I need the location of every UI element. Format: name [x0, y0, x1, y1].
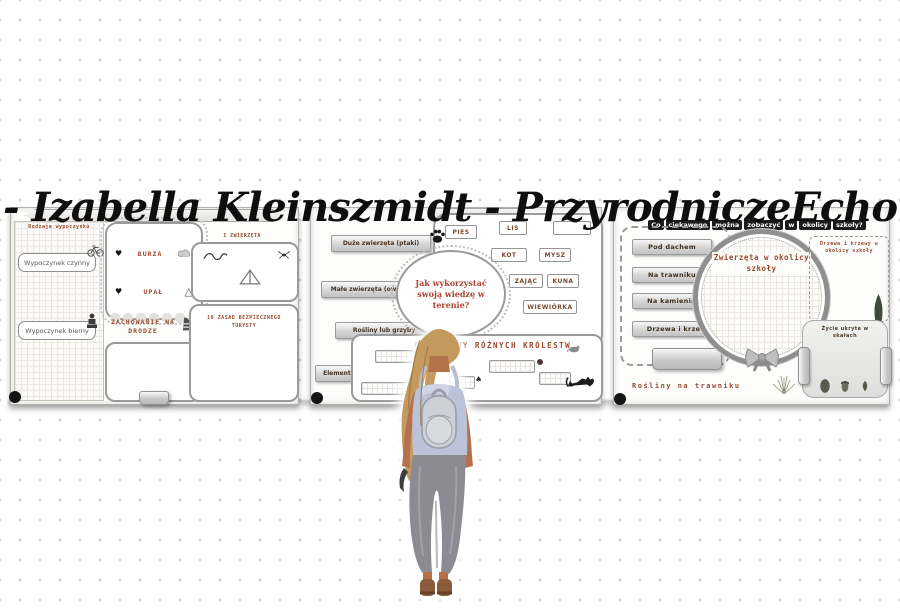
corner-dot — [9, 391, 21, 403]
acorn-icon — [840, 377, 850, 393]
question-text: Jak wykorzystać swoją wiedzę w terenie? — [409, 278, 493, 311]
heart-icon: ♥ — [115, 288, 122, 296]
active-rest-label[interactable]: Wypoczynek czynny — [18, 253, 96, 272]
hiker-woman-photo — [376, 326, 494, 606]
animal-box-mysz[interactable]: MYSZ — [539, 248, 571, 262]
tag-large-animals[interactable]: Duże zwierzęta (ptaki) — [331, 235, 431, 252]
answer-strip[interactable] — [489, 360, 535, 373]
trees-heading: Drzewa i krzewy w okolicy szkoły — [813, 241, 885, 255]
button-pod-dachem[interactable]: Pod dachem — [632, 239, 712, 255]
corner-dot — [614, 393, 626, 405]
animals-caption: I ZWIERZĘTA — [189, 233, 295, 240]
grass-icon — [769, 374, 799, 394]
animal-box-wiewiorka[interactable]: WIEWIÓRKA — [523, 300, 577, 314]
tourist-rules-box: 10 ZASAD BEZPIECZNEGO TURYSTY — [189, 304, 299, 402]
lawn-plants-caption: Rośliny na trawniku — [632, 382, 741, 390]
hoop-heading: Zwierzęta w okolicy szkoły — [712, 252, 811, 274]
tent-icon — [239, 262, 261, 292]
ladybug-icon — [535, 358, 545, 366]
scroll-ribbon — [652, 348, 722, 370]
question-oval: Jak wykorzystać swoją wiedzę w terenie? — [396, 250, 506, 338]
worksheet-rest-safety[interactable]: Rodzaje wypoczynku Wypoczynek czynny Wyp… — [10, 207, 299, 405]
author-title: - Izabella Kleinszmidt - PrzyrodniczeEch… — [0, 184, 900, 231]
animals-box — [191, 242, 299, 302]
cat-silhouette-icon — [565, 372, 595, 389]
heart-icon: ♥ — [115, 250, 122, 258]
rocks-heading: Życie ukryte w skałach — [809, 326, 881, 340]
pinecone-icon — [819, 377, 831, 393]
animal-box-kuna[interactable]: KUNA — [547, 274, 579, 288]
corner-dot — [311, 392, 323, 404]
leaf-icon — [859, 379, 871, 393]
storm-label: BURZA — [138, 250, 163, 258]
bicycle-icon — [87, 244, 104, 257]
road-behaviour-heading: ZACHOWANIE NA DRODZE — [107, 318, 179, 336]
rocks-box: Życie ukryte w skałach — [802, 320, 888, 398]
animal-box-kot[interactable]: KOT — [491, 248, 527, 262]
rope-squiggle-icon — [203, 251, 228, 262]
tourist-rules-heading: 10 ZASAD BEZPIECZNEGO TURYSTY — [198, 314, 290, 330]
road-answer-box — [105, 342, 201, 402]
mouse-icon — [567, 344, 581, 353]
page: Rodzaje wypoczynku Wypoczynek czynny Wyp… — [0, 0, 900, 609]
heat-label: UPAŁ — [144, 288, 164, 296]
animal-box-zajac[interactable]: ZAJĄC — [509, 274, 543, 288]
mosquito-icon — [277, 250, 291, 260]
resting-person-icon — [85, 313, 99, 329]
worksheet-around-school[interactable]: Cociekawegomożnazobaczyćwokolicyszkoły? … — [613, 207, 890, 405]
scroll-ribbon — [139, 391, 169, 405]
bow-icon — [744, 346, 780, 374]
